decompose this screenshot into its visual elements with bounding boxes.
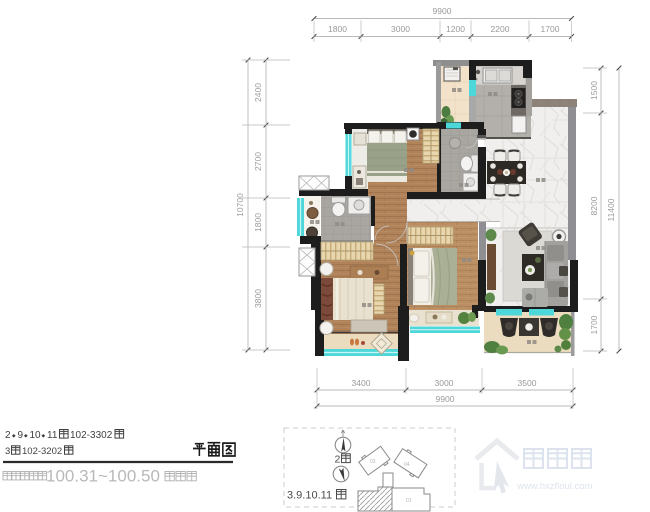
svg-text:10700: 10700: [235, 193, 245, 217]
svg-text:2700: 2700: [253, 152, 263, 171]
svg-text:3000: 3000: [435, 378, 454, 388]
svg-text:2: 2: [335, 454, 341, 466]
svg-text:9: 9: [18, 430, 24, 441]
svg-text:3800: 3800: [253, 289, 263, 308]
svg-text:3.9.10.11: 3.9.10.11: [287, 490, 332, 502]
svg-text:03: 03: [370, 459, 376, 465]
svg-text:1800: 1800: [328, 24, 347, 34]
svg-text:1700: 1700: [589, 315, 599, 334]
svg-text:102-3302: 102-3302: [70, 430, 113, 441]
svg-text:01: 01: [406, 498, 412, 504]
svg-text:3000: 3000: [391, 24, 410, 34]
svg-text:9900: 9900: [436, 394, 455, 404]
svg-text:1200: 1200: [446, 24, 465, 34]
svg-text:1800: 1800: [253, 213, 263, 232]
svg-text:04: 04: [404, 462, 410, 468]
svg-text:2200: 2200: [491, 24, 510, 34]
svg-text:9900: 9900: [433, 6, 452, 16]
svg-text:www.hxzfloul.com: www.hxzfloul.com: [516, 481, 593, 492]
svg-text:1500: 1500: [589, 81, 599, 100]
svg-text:3: 3: [5, 446, 10, 457]
svg-text:8200: 8200: [589, 196, 599, 215]
svg-text:10: 10: [30, 430, 42, 441]
svg-text:3400: 3400: [352, 378, 371, 388]
svg-text:3500: 3500: [518, 378, 537, 388]
svg-text:1700: 1700: [541, 24, 560, 34]
svg-text:11400: 11400: [606, 198, 616, 221]
svg-text:11: 11: [47, 430, 58, 441]
svg-text:102-3202: 102-3202: [22, 446, 62, 457]
svg-text:2400: 2400: [253, 83, 263, 102]
svg-text:100.31~100.50: 100.31~100.50: [46, 467, 160, 486]
svg-text:2: 2: [5, 430, 11, 441]
